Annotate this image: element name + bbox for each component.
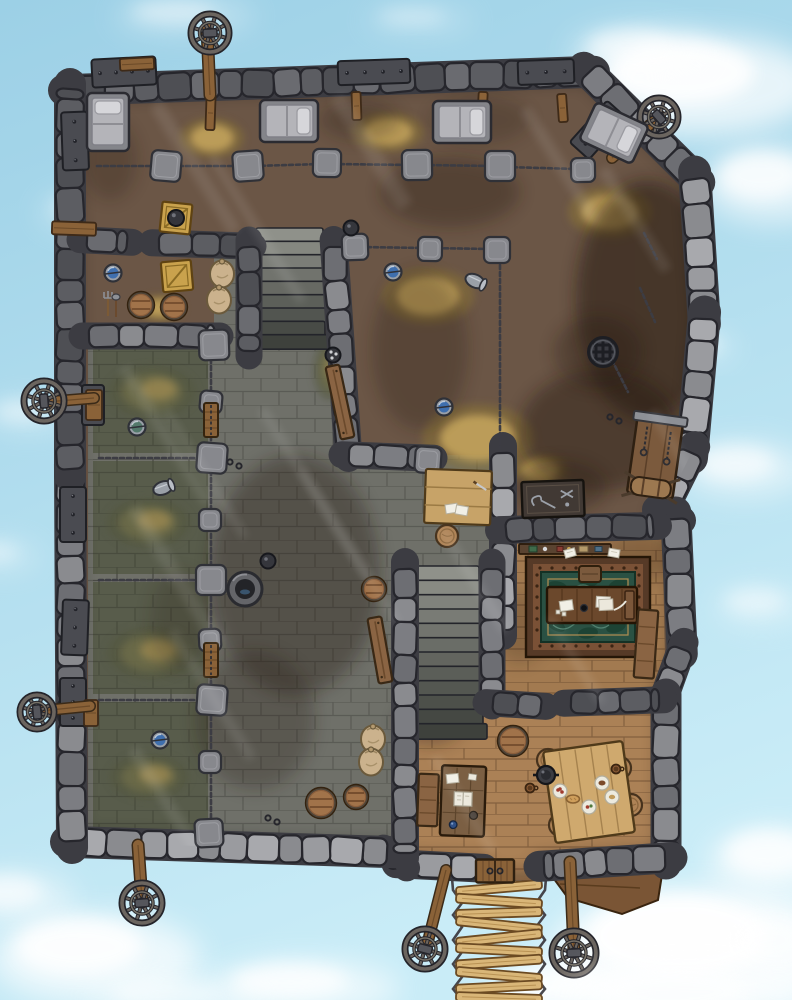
bucket [129,419,146,436]
wooden-bench [417,774,439,827]
barrel [498,726,528,756]
stone-wall-segment [652,694,680,864]
desk-chair [579,566,601,582]
battle-map-stage [0,0,792,1000]
supply-sack [210,259,234,288]
stone-post [150,150,183,183]
stone-wall-segment [539,846,672,879]
iron-pot [261,554,276,569]
wall-wood-beam [52,221,96,236]
stone-post [342,234,369,261]
wooden-bench [634,609,659,678]
double-door [476,860,514,883]
wooden-crate [160,202,193,235]
stone-wall-segment [237,240,261,356]
stone-wall-segment [486,692,546,718]
stone-post [402,150,433,181]
barrel [344,785,368,809]
wooden-crate [161,260,194,293]
wall-wood-beam [557,94,568,123]
prison-bed [87,93,129,151]
bucket [436,399,453,416]
floor-stain [372,270,468,430]
chain-fence [423,165,494,166]
stone-post [198,329,229,360]
floor-drain-grate [589,338,618,367]
guard-table [424,469,492,525]
stone-post [199,751,221,773]
iron-pot [326,348,341,363]
supply-sack [359,747,383,776]
cloud [365,6,475,34]
barrel [306,788,336,818]
bucket [385,264,402,281]
riveted-iron-plate [61,600,89,656]
cell-gate [204,403,218,437]
wall-wood-beam [120,57,155,71]
stone-post [485,151,515,181]
barrel [161,294,187,320]
riveted-iron-plate [518,59,575,85]
stone-wall-segment [564,689,664,714]
stone-post [484,237,510,263]
riveted-iron-plate [338,59,411,85]
food-plate [605,790,619,804]
barrel [128,292,154,318]
bucket [152,732,169,749]
cell-gate [204,643,218,677]
stone-post [232,150,264,182]
iron-pot [344,221,359,236]
riveted-iron-plate [60,487,86,542]
bucket [105,265,122,282]
food-plate [582,800,596,814]
food-plate [595,776,609,790]
stone-wall-segment [392,562,417,858]
supply-sack [207,285,231,314]
stone-post [313,149,341,177]
battle-map-canvas [0,0,792,1000]
prison-bed [433,101,491,143]
riveted-iron-plate [61,112,89,171]
office-desk [547,587,637,623]
stone-post [199,509,221,531]
tool-table [521,480,584,518]
loose-paper [608,548,620,558]
prison-bed [260,100,318,142]
bread-loaf [567,795,580,803]
food-plate [553,784,567,798]
stone-wall-segment [480,562,504,706]
stone-post [418,237,442,261]
stone-well [228,572,262,606]
stone-post [196,565,226,595]
